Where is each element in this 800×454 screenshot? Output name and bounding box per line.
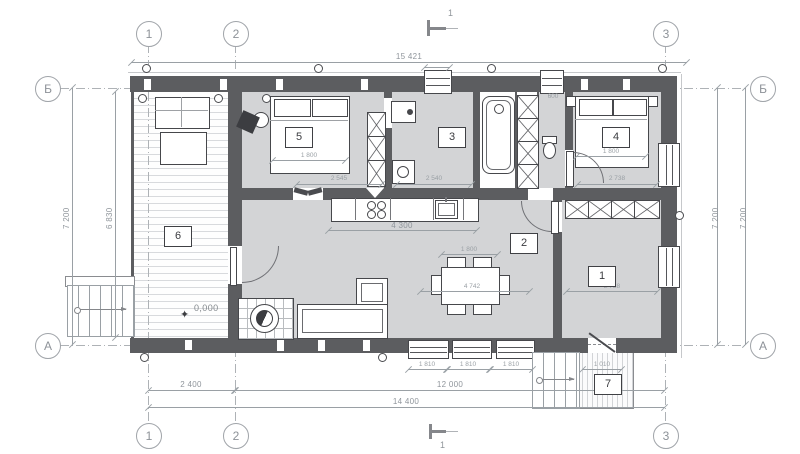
window-slot xyxy=(220,79,227,90)
dim-text-room3: 2 540 xyxy=(426,175,442,182)
dim-text-room5: 2 545 xyxy=(331,175,347,182)
section-marker-bottom-flag xyxy=(429,424,432,439)
cooktop-burner xyxy=(367,210,376,219)
window-bottom-3 xyxy=(496,340,535,359)
dim-text-left-outer: 7 200 xyxy=(62,207,71,229)
vent-circle xyxy=(658,64,667,73)
eave-line-top xyxy=(128,72,681,73)
dim-line-left-outer xyxy=(72,88,73,345)
dim-line-room1 xyxy=(566,291,658,292)
dim-text-room4: 2 738 xyxy=(609,175,625,182)
dim-text-window-3: 1 810 xyxy=(503,361,519,368)
dim-line-room3 xyxy=(396,184,472,185)
dim-text-living: 4 742 xyxy=(464,283,480,290)
dim-text-window-1: 1 810 xyxy=(419,361,435,368)
grid-axis-3-top: 3 xyxy=(653,21,679,47)
window-slot xyxy=(144,79,151,90)
dim-text-bottom-overall: 14 400 xyxy=(393,397,419,406)
vent-circle xyxy=(675,211,684,220)
room-label-2: 2 xyxy=(510,233,538,254)
dim-text-corridor: 600 xyxy=(548,93,559,100)
grid-axis-3-bottom: 3 xyxy=(653,423,679,449)
window-bottom-2 xyxy=(452,340,492,359)
window-right-room4 xyxy=(658,143,680,187)
window-slot xyxy=(185,340,192,350)
wardrobe-room1 xyxy=(588,200,613,219)
wardrobe-room5 xyxy=(367,112,386,138)
grid-axis-2-top: 2 xyxy=(223,21,249,47)
dim-text-bed4: 1 800 xyxy=(603,148,619,155)
chair xyxy=(499,275,510,295)
vent-circle xyxy=(140,353,149,362)
window-slot xyxy=(623,79,630,90)
counter-divider xyxy=(390,198,391,220)
grid-axis-2-bottom: 2 xyxy=(223,423,249,449)
wardrobe-bath xyxy=(517,95,539,120)
chair xyxy=(473,304,492,315)
window-slot xyxy=(581,79,588,90)
room-label-3: 3 xyxy=(438,127,466,148)
window-top-2 xyxy=(540,70,564,94)
toilet-bowl xyxy=(543,142,556,159)
counter-divider xyxy=(463,198,464,220)
window-bottom-1 xyxy=(408,340,449,359)
terrace-bench xyxy=(155,97,210,129)
grid-axis-a-right: А xyxy=(750,333,776,359)
room-label-5: 5 xyxy=(285,127,313,148)
wardrobe-bath xyxy=(517,164,539,189)
vent-circle xyxy=(314,64,323,73)
window-slot xyxy=(318,340,325,351)
stove-door xyxy=(256,310,273,327)
stairs-direction-arrow xyxy=(76,309,126,310)
vent-circle xyxy=(142,64,151,73)
door-handle xyxy=(407,109,413,115)
dim-line-room5 xyxy=(296,184,382,185)
room-label-7: 7 xyxy=(594,374,622,395)
wardrobe-room5 xyxy=(367,136,386,162)
terrace-table xyxy=(160,132,207,165)
pillow xyxy=(274,99,311,117)
bathtub-drain xyxy=(494,104,504,114)
room-label-6: 6 xyxy=(164,226,192,247)
pillow xyxy=(312,99,348,117)
dim-line-porch xyxy=(582,369,622,370)
section-marker-top-flag xyxy=(427,20,430,36)
blanket-line xyxy=(270,120,348,121)
grid-axis-b-right: Б xyxy=(750,76,776,102)
dim-line-overall-top xyxy=(131,62,687,63)
dim-line-bed5 xyxy=(272,160,346,161)
window-slot xyxy=(276,79,283,90)
section-marker-top-bar xyxy=(428,27,446,30)
room-label-4: 4 xyxy=(602,127,630,148)
section-marker-top-label: 1 xyxy=(448,8,453,18)
grid-axis-1-top: 1 xyxy=(136,21,162,47)
level-mark-text: 0,000 xyxy=(194,303,219,313)
cooktop-burner xyxy=(377,201,386,210)
cooktop-burner xyxy=(377,210,386,219)
sofa-corner-inner xyxy=(361,283,383,302)
dim-text-right-outer: 7 200 xyxy=(739,207,748,229)
dim-line-kitchen xyxy=(328,230,477,231)
terrace-bench-divider xyxy=(181,97,182,127)
wall-top xyxy=(130,76,677,92)
dim-text-table: 1 800 xyxy=(461,246,477,253)
dim-line-window-3 xyxy=(490,369,533,370)
chair xyxy=(447,304,466,315)
dim-text-bed5: 1 800 xyxy=(301,152,317,159)
washbasin-bowl xyxy=(397,166,409,178)
cooktop-burner xyxy=(367,201,376,210)
dim-text-overall-top: 15 421 xyxy=(396,52,422,61)
blanket-line xyxy=(575,119,647,120)
vent-circle xyxy=(214,94,223,103)
vent-circle xyxy=(378,353,387,362)
counter-divider xyxy=(433,198,434,220)
pillow xyxy=(613,99,647,116)
dim-text-right-inner: 7 200 xyxy=(711,207,720,229)
dim-line-living xyxy=(420,291,530,292)
floor-plan-canvas: 15 421 7 200 6 830 7 200 7 200 2 400 12 … xyxy=(0,0,800,454)
dim-line-room4 xyxy=(577,184,657,185)
dim-text-kitchen: 4 300 xyxy=(391,221,413,230)
section-marker-bottom-label: 1 xyxy=(440,440,445,450)
wall-room3-bath xyxy=(473,92,480,188)
dim-line-window-2 xyxy=(447,369,490,370)
door-leaf-room4 xyxy=(566,151,574,187)
dim-line-window-1 xyxy=(408,369,447,370)
sink-tap xyxy=(445,197,447,202)
door-gap-corridor xyxy=(528,188,553,200)
dim-text-grid-2-3: 12 000 xyxy=(437,380,463,389)
section-marker-bottom-bar xyxy=(430,430,446,433)
grid-axis-1-bottom: 1 xyxy=(136,423,162,449)
wardrobe-room1 xyxy=(565,200,590,219)
window-slot xyxy=(363,340,370,351)
grid-line-1 xyxy=(148,44,149,422)
terrace-bench-edge xyxy=(155,110,208,111)
wardrobe-room1 xyxy=(634,200,660,219)
dim-text-grid-1-2: 2 400 xyxy=(180,380,202,389)
vent-circle xyxy=(138,94,147,103)
bedside-table xyxy=(648,96,658,107)
dim-line-left-inner xyxy=(115,92,116,338)
sofa-inner xyxy=(302,309,383,333)
dim-text-left-inner: 6 830 xyxy=(105,207,114,229)
window-slot xyxy=(361,79,368,90)
pillow xyxy=(579,99,613,116)
grid-axis-a-left: А xyxy=(35,333,61,359)
door-leaf-terrace xyxy=(230,247,237,286)
wardrobe-bath xyxy=(517,118,539,143)
door-leaf-room1 xyxy=(551,201,559,234)
vent-circle xyxy=(487,64,496,73)
grid-axis-b-left: Б xyxy=(35,76,61,102)
wardrobe-bath xyxy=(517,141,539,166)
dim-line-table xyxy=(441,254,498,255)
wardrobe-room1 xyxy=(611,200,636,219)
kitchen-sink-basin xyxy=(438,203,455,216)
dim-line-bottom-overall xyxy=(148,407,665,408)
dim-text-window-2: 1 810 xyxy=(460,361,476,368)
dim-text-porch: 1 010 xyxy=(594,361,610,368)
dim-line-bed4 xyxy=(576,156,646,157)
window-right-room1 xyxy=(658,246,680,288)
window-slot xyxy=(277,340,284,351)
stairs-direction-arrow xyxy=(538,379,574,380)
window-top-1 xyxy=(424,70,452,94)
room-label-1: 1 xyxy=(588,266,616,287)
hood-niche xyxy=(366,188,384,198)
dim-line-grid-1-2 xyxy=(148,390,235,391)
dim-line-window-top xyxy=(424,67,450,68)
counter-divider xyxy=(355,198,356,220)
